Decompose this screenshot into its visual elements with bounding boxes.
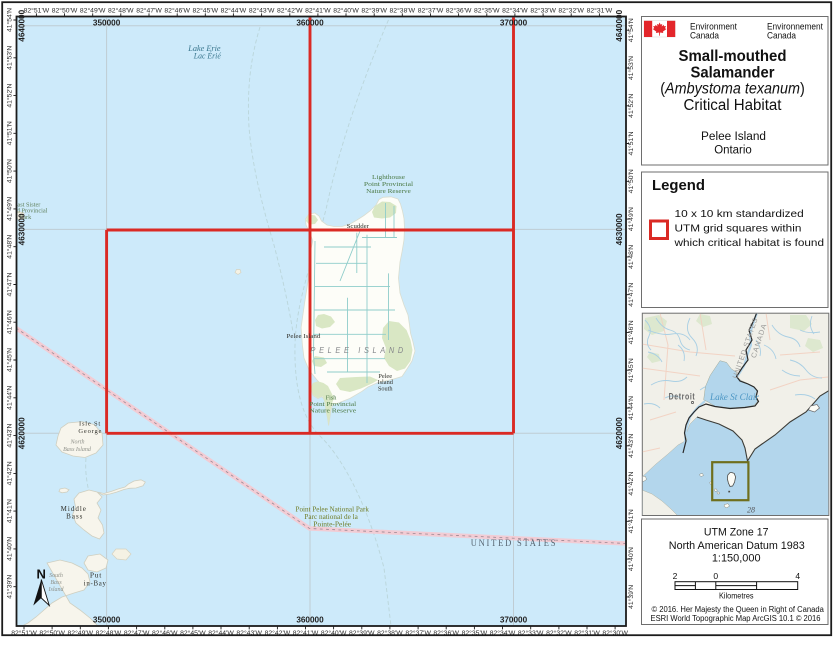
svg-text:41°41'N: 41°41'N	[627, 509, 635, 533]
svg-text:Pointe-Pelée: Pointe-Pelée	[313, 522, 351, 529]
svg-text:(Ambystoma texanum): (Ambystoma texanum)	[660, 81, 805, 98]
svg-text:Legend: Legend	[652, 177, 705, 194]
svg-text:ESRI World Topographic Map Arc: ESRI World Topographic Map ArcGIS 10.1 ©…	[651, 614, 822, 623]
svg-text:N: N	[37, 567, 46, 582]
svg-text:Nature Reserve: Nature Reserve	[366, 188, 411, 195]
svg-text:4620000: 4620000	[18, 417, 27, 449]
svg-text:41°42'N: 41°42'N	[6, 461, 14, 485]
svg-text:82°41'W: 82°41'W	[305, 7, 331, 15]
svg-text:10 x 10 km standardized: 10 x 10 km standardized	[675, 209, 805, 220]
svg-text:Nature Reserve: Nature Reserve	[309, 407, 356, 414]
svg-text:Pelee Island: Pelee Island	[701, 131, 766, 143]
svg-text:82°42'W: 82°42'W	[277, 7, 303, 15]
svg-text:41°41'N: 41°41'N	[6, 499, 14, 523]
svg-text:82°35'W: 82°35'W	[474, 7, 500, 15]
svg-text:41°44'N: 41°44'N	[627, 396, 635, 420]
svg-text:in-Bay: in-Bay	[84, 579, 107, 588]
svg-text:Canada: Canada	[690, 31, 719, 41]
svg-text:82°46'W: 82°46'W	[164, 7, 190, 15]
svg-text:Pelee Island: Pelee Island	[287, 333, 322, 340]
svg-text:41°46'N: 41°46'N	[627, 320, 635, 344]
svg-text:Parc national de la: Parc national de la	[304, 514, 357, 521]
svg-text:350000: 350000	[93, 616, 121, 625]
svg-text:41°39'N: 41°39'N	[627, 585, 635, 609]
svg-text:82°36'W: 82°36'W	[446, 7, 472, 15]
svg-text:82°39'W: 82°39'W	[361, 7, 387, 15]
svg-text:41°46'N: 41°46'N	[6, 310, 14, 334]
svg-text:82°31'W: 82°31'W	[587, 7, 613, 15]
svg-text:41°48'N: 41°48'N	[6, 235, 14, 259]
svg-text:41°51'N: 41°51'N	[627, 131, 635, 155]
svg-text:2: 2	[673, 571, 678, 581]
svg-text:41°40'N: 41°40'N	[627, 547, 635, 571]
svg-text:41°40'N: 41°40'N	[6, 537, 14, 561]
svg-text:41°49'N: 41°49'N	[627, 207, 635, 231]
svg-text:41°50'N: 41°50'N	[627, 169, 635, 193]
svg-text:41°42'N: 41°42'N	[627, 471, 635, 495]
svg-text:41°51'N: 41°51'N	[6, 121, 14, 145]
svg-text:41°53'N: 41°53'N	[627, 56, 635, 80]
svg-text:82°40'W: 82°40'W	[333, 7, 359, 15]
svg-text:4630000: 4630000	[18, 213, 27, 245]
svg-text:41°52'N: 41°52'N	[627, 94, 635, 118]
svg-text:Isle St: Isle St	[79, 420, 101, 427]
svg-text:82°51'W: 82°51'W	[24, 7, 50, 15]
svg-text:41°44'N: 41°44'N	[6, 386, 14, 410]
svg-text:Bass: Bass	[66, 513, 83, 521]
svg-text:UTM Zone 17: UTM Zone 17	[704, 527, 769, 539]
svg-text:82°32'W: 82°32'W	[558, 7, 584, 15]
svg-text:North: North	[69, 440, 84, 446]
svg-text:370000: 370000	[500, 19, 528, 28]
svg-text:4640000: 4640000	[615, 9, 624, 41]
svg-text:© 2016. Her Majesty the Queen: © 2016. Her Majesty the Queen in Right o…	[652, 605, 825, 614]
svg-text:South: South	[378, 386, 394, 393]
svg-text:Point Pelee National Park: Point Pelee National Park	[296, 507, 370, 514]
svg-text:Bass: Bass	[50, 580, 62, 586]
svg-text:Lake St Clair: Lake St Clair	[709, 392, 760, 402]
svg-text:41°43'N: 41°43'N	[627, 434, 635, 458]
svg-text:41°47'N: 41°47'N	[6, 272, 14, 296]
svg-text:41°45'N: 41°45'N	[6, 348, 14, 372]
svg-text:41°45'N: 41°45'N	[627, 358, 635, 382]
svg-text:Lac Érié: Lac Érié	[193, 51, 221, 61]
svg-text:82°47'W: 82°47'W	[136, 7, 162, 15]
svg-text:Scudder: Scudder	[347, 223, 370, 230]
svg-text:41°43'N: 41°43'N	[6, 423, 14, 447]
svg-text:Point Provincial: Point Provincial	[364, 181, 414, 188]
svg-text:4620000: 4620000	[615, 417, 624, 449]
svg-text:350000: 350000	[93, 19, 121, 28]
svg-text:82°43'W: 82°43'W	[249, 7, 275, 15]
svg-text:360000: 360000	[296, 19, 324, 28]
svg-text:Critical Habitat: Critical Habitat	[684, 97, 783, 114]
svg-text:Detroit: Detroit	[669, 392, 696, 402]
svg-text:4: 4	[795, 571, 800, 581]
svg-text:82°50'W: 82°50'W	[52, 7, 78, 15]
svg-text:41°50'N: 41°50'N	[6, 159, 14, 183]
svg-text:41°52'N: 41°52'N	[6, 83, 14, 107]
svg-text:82°37'W: 82°37'W	[418, 7, 444, 15]
svg-text:82°49'W: 82°49'W	[80, 7, 106, 15]
svg-text:Island: Island	[48, 587, 65, 593]
svg-text:4630000: 4630000	[615, 213, 624, 245]
svg-text:82°33'W: 82°33'W	[530, 7, 556, 15]
svg-text:41°48'N: 41°48'N	[627, 245, 635, 269]
svg-text:0: 0	[713, 571, 718, 581]
svg-text:41°54'N: 41°54'N	[627, 18, 635, 42]
svg-text:41°53'N: 41°53'N	[6, 46, 14, 70]
svg-text:41°49'N: 41°49'N	[6, 197, 14, 221]
svg-text:Bass Island: Bass Island	[63, 447, 92, 453]
svg-text:82°34'W: 82°34'W	[502, 7, 528, 15]
svg-text:PELEE ISLAND: PELEE ISLAND	[311, 346, 407, 355]
svg-text:Lighthouse: Lighthouse	[372, 174, 405, 181]
svg-text:82°38'W: 82°38'W	[390, 7, 416, 15]
svg-text:41°47'N: 41°47'N	[627, 283, 635, 307]
svg-text:UTM grid squares within: UTM grid squares within	[675, 224, 802, 235]
svg-text:Canada: Canada	[767, 31, 796, 41]
svg-text:1:150,000: 1:150,000	[712, 553, 761, 565]
svg-text:UNITED STATES: UNITED STATES	[471, 539, 558, 549]
svg-text:South: South	[49, 573, 63, 579]
svg-text:370000: 370000	[500, 616, 528, 625]
svg-text:Small-mouthed: Small-mouthed	[679, 48, 787, 65]
svg-text:82°45'W: 82°45'W	[193, 7, 219, 15]
svg-text:4640000: 4640000	[18, 9, 27, 41]
svg-text:360000: 360000	[296, 616, 324, 625]
svg-text:Salamander: Salamander	[691, 64, 775, 81]
svg-text:82°48'W: 82°48'W	[108, 7, 134, 15]
svg-text:North American Datum 1983: North American Datum 1983	[669, 540, 805, 552]
svg-text:which critical habitat is foun: which critical habitat is found	[673, 238, 824, 249]
svg-text:Ontario: Ontario	[714, 145, 752, 157]
svg-text:George: George	[78, 428, 102, 435]
svg-text:82°44'W: 82°44'W	[221, 7, 247, 15]
svg-text:41°39'N: 41°39'N	[6, 575, 14, 599]
svg-text:28: 28	[747, 506, 755, 515]
svg-text:41°54'N: 41°54'N	[6, 8, 14, 32]
svg-text:Kilometres: Kilometres	[719, 590, 754, 600]
